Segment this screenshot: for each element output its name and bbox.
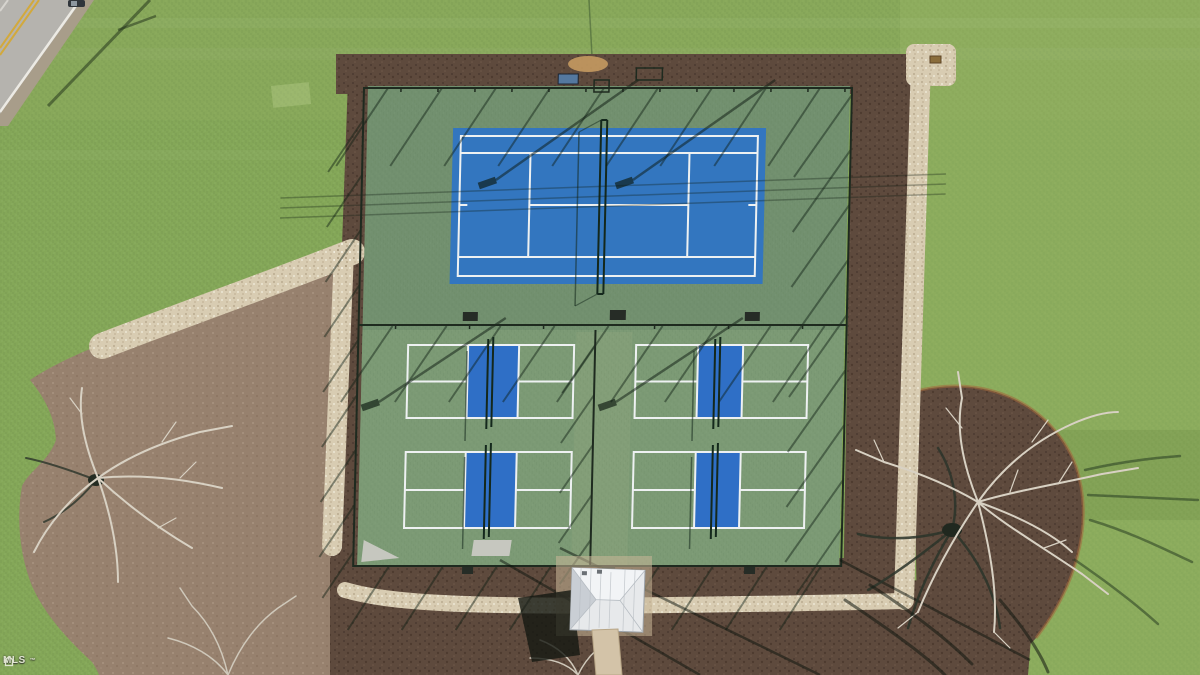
house-icon [3,655,15,667]
roof-vent [582,571,587,575]
bench [744,567,755,574]
bench [745,312,760,321]
bench [610,310,626,320]
watermark-suffix: ™ [30,658,37,664]
walkway [592,629,622,675]
watermark: MLS™ [3,655,36,666]
bench [462,567,473,574]
vehicle-windshield [71,1,77,6]
roof-vent [597,570,602,574]
bench [463,312,478,321]
sign-marker [930,56,941,63]
aerial-photo: MLS™ [0,0,1200,675]
tennis-court [449,120,766,306]
bench-blue [558,74,578,84]
aerial-scene [0,0,1200,675]
dirt-patch [568,56,608,72]
gravel-pad [906,44,956,86]
